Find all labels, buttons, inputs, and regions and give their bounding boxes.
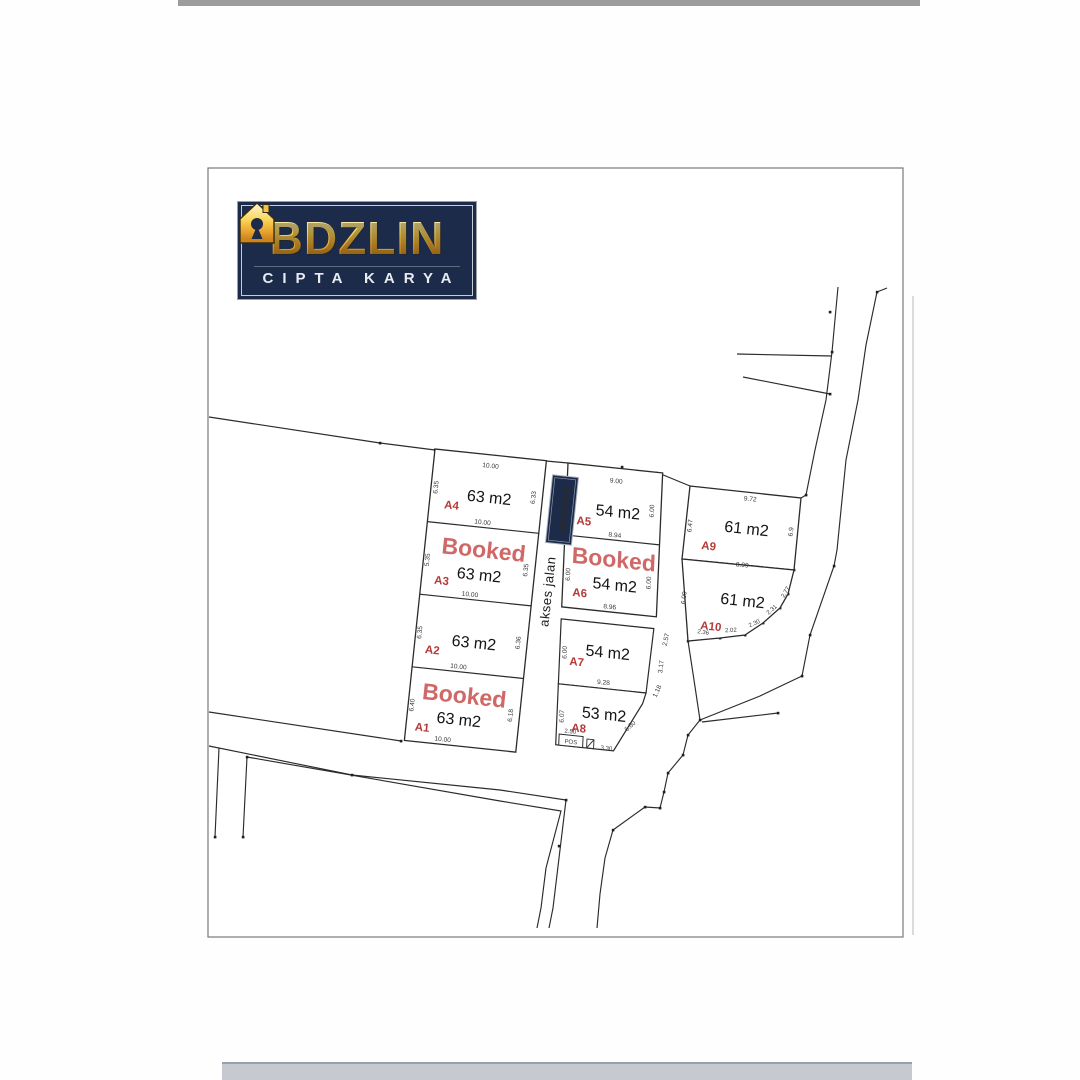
plot-a6-bottom-dim: 8.96 [603,603,616,611]
plot-a7-bottom-dim: 9.28 [597,679,610,687]
plot-a1-right-dim: 6.18 [507,708,515,722]
brand-text-right: DZLIN [304,215,444,261]
brand-tagline: CIPTA KARYA [254,266,461,286]
photo-bottom-edge [222,1062,912,1080]
plot-a6-left-dim: 6.00 [565,567,573,581]
plot-a5-top-dim: 9.00 [610,477,623,485]
plot-a2-left-dim: 6.35 [416,625,424,639]
house-icon [239,202,275,244]
plot-a3-right-dim: 6.35 [522,563,530,577]
plot-a9-bottom-dim: 8.99 [735,561,749,569]
plot-a9-left-dim: 6.47 [686,519,694,533]
plot-a6-id: A6 [572,587,587,601]
plot-a7-id: A7 [569,656,584,670]
plot-a3-id: A3 [434,575,450,588]
plot-a4-left-dim: 6.35 [432,480,440,494]
plot-a1-id: A1 [414,721,430,735]
brand-row: B DZLIN [270,215,445,261]
plot-a3-left-dim: 5.35 [424,553,432,567]
plot-a2-right-dim: 6.36 [515,636,523,650]
plot-a1-left-dim: 6.40 [408,698,416,712]
plot-a9-top-dim: 9.72 [743,495,757,503]
plot-a10-left-dim: 6.00 [680,591,688,605]
plot-a7-left-dim: 6.00 [561,645,569,659]
plot-a5-bottom-dim: 8.94 [608,532,621,540]
site-plan: 10.00 63 m2 A4 10.00 6.35 6.33 Booked 63… [0,0,1080,1080]
plot-a8-left-dim: 6.07 [559,709,567,723]
plot-a4-id: A4 [444,499,460,513]
plot-a9-right-dim: 6.9 [788,527,796,537]
plot-a5-id: A5 [576,515,592,529]
badzlin-logo: B DZLIN CIPTA KARYA [237,201,477,300]
plot-a10-seg-2: 2.02 [725,628,738,635]
plot-a2-id: A2 [424,644,440,657]
plot-a9-id: A9 [701,540,717,553]
photo-bottom-edge-line [222,1062,912,1064]
plot-a6-right-dim: 6.00 [646,576,654,590]
gate-width-dim: 3.30 [600,745,613,752]
site-plan-drawing: 10.00 63 m2 A4 10.00 6.35 6.33 Booked 63… [0,0,1080,1080]
plot-a4-right-dim: 6.33 [530,491,538,505]
plot-a5-right-dim: 6.00 [649,504,657,518]
photo-top-edge [178,0,920,6]
